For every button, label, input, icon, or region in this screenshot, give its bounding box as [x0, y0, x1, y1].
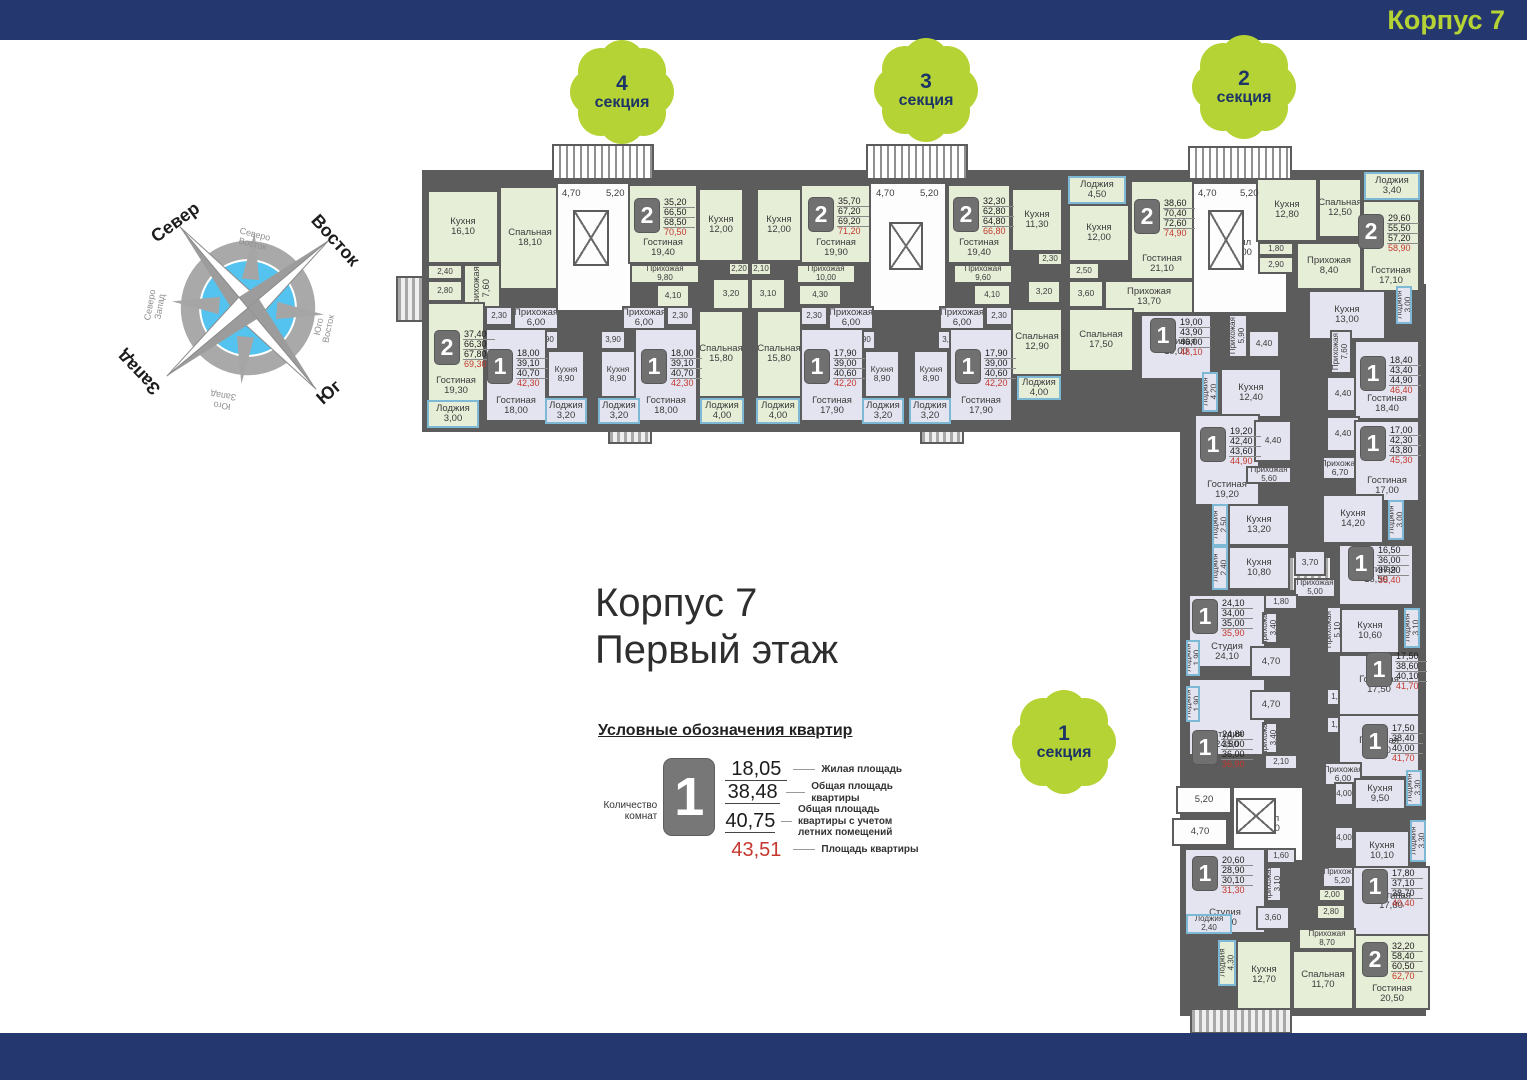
kitchen: Кухня 11,30: [1011, 188, 1063, 252]
apartment-badge-1-room: 118,0039,1040,7042,30: [641, 349, 702, 388]
legend-value: 40,75: [725, 810, 775, 833]
loggia: Лоджия 4,50: [1068, 176, 1126, 204]
legend-label: Площадь квартиры: [821, 844, 918, 856]
loggia: Лоджия 3,20: [909, 398, 951, 424]
kitchen: Кухня 8,90: [600, 350, 636, 398]
room-count: 1: [1192, 856, 1218, 891]
apartment-areas: 35,2066,5068,5070,50: [663, 198, 695, 237]
room-count: 1: [1192, 730, 1218, 765]
bedroom: Спальная 17,50: [1068, 308, 1134, 372]
compass-label: Юго Запад: [209, 388, 237, 411]
stair-block: [866, 144, 968, 180]
apartment-badge-1-room: 117,5038,4040,0041,70: [1362, 724, 1423, 763]
legend-label: Общая площадь квартиры с учетом летних п…: [798, 804, 928, 839]
elevator-shaft: [1236, 798, 1276, 834]
room-cell: 1,60: [1266, 848, 1296, 864]
hallway: Прихожая 6,00: [513, 306, 559, 330]
legend-rooms-label: Количество комнат: [598, 800, 663, 822]
bedroom: Спальная 15,80: [698, 310, 744, 398]
title-line2: Первый этаж: [595, 627, 838, 674]
loggia: Лоджия 1,90: [1186, 686, 1200, 722]
apartment-badge-1-room: 117,5038,6040,1041,70: [1366, 652, 1427, 691]
loggia: Лоджия 3,20: [598, 398, 640, 424]
legend-row: 43,51Площадь квартиры: [725, 839, 928, 861]
apartment-areas: 17,5038,4040,0041,70: [1391, 724, 1423, 763]
hallway: Прихожая 8,40: [1296, 242, 1362, 290]
hallway: Прихожая 9,80: [630, 264, 700, 284]
hallway: Прихожая 6,00: [622, 306, 666, 330]
room-count: 1: [1362, 869, 1388, 904]
elevator-shaft: [889, 222, 923, 270]
room-cell: 2,30: [666, 306, 694, 326]
apartment-badge-1-room: 124,1034,0035,0035,90: [1192, 599, 1253, 638]
room-cell: 4,00: [1334, 826, 1354, 850]
area-value: 41,70: [1391, 754, 1423, 763]
apartment-badge-2-room: 235,2066,5068,5070,50: [634, 198, 695, 237]
area-value: 42,20: [984, 379, 1016, 388]
hallway: Прихожая 3,40: [1262, 612, 1278, 644]
hallway: Прихожая 10,00: [796, 264, 856, 284]
room-cell: 5,20: [1176, 786, 1232, 814]
area-value: 35,90: [1221, 629, 1253, 638]
loggia: Лоджия 4,00: [1017, 376, 1061, 400]
bedroom: Спальная 12,50: [1318, 178, 1362, 238]
room-count: 2: [1362, 942, 1388, 977]
kitchen: Кухня 10,80: [1228, 546, 1290, 590]
apartment-badge-2-room: 235,7067,2069,2071,20: [808, 197, 869, 236]
room-cell: 4,00: [1334, 782, 1354, 806]
kitchen: Кухня 14,20: [1322, 494, 1384, 544]
loggia: Лоджия 3,00: [1388, 500, 1404, 540]
loggia: Лоджия 4,00: [700, 398, 744, 424]
room-count: 1: [955, 349, 981, 384]
legend-values: 18,05Жилая площадь38,48Общая площадь ква…: [725, 758, 928, 861]
room-count: 1: [1192, 599, 1218, 634]
loggia: Лоджия 2,40: [1212, 546, 1228, 590]
kitchen: Кухня 12,80: [1256, 178, 1318, 242]
room-cell: 3,60: [1256, 906, 1290, 930]
dimension-label: 5,20: [606, 188, 625, 199]
room-cell: 2,80: [1316, 904, 1346, 920]
hallway: Прихожая 5,60: [1246, 466, 1292, 484]
legend-connector: [786, 792, 805, 793]
loggia: Лоджия 2,50: [1212, 504, 1228, 546]
hallway: Прихожая 6,00: [828, 306, 874, 330]
room-cell: 2,90: [1258, 256, 1294, 274]
room-cell: 4,70: [1250, 646, 1292, 678]
hallway: Прихожая 5,90: [1228, 314, 1248, 358]
area-value: 42,30: [670, 379, 702, 388]
room-cell: 2,30: [800, 306, 828, 326]
room-cell: 2,40: [427, 264, 463, 280]
room-cell: 3,10: [750, 278, 786, 310]
apartment-badge-2-room: 238,6070,4072,6074,90: [1134, 199, 1195, 238]
room-cell: 4,40: [1248, 330, 1280, 358]
apartment-areas: 20,6028,9030,1031,30: [1221, 856, 1253, 895]
area-value: 36,90: [1221, 760, 1253, 769]
area-value: 46,40: [1389, 386, 1421, 395]
room-cell: 4,70: [1172, 818, 1228, 846]
room-cell: 2,50: [1068, 262, 1100, 280]
page: Корпус 7 СеверВостокЮгЗападСеверо Восток…: [0, 0, 1527, 1080]
apartment-badge-1-room: 116,5036,0037,2038,40: [1348, 546, 1409, 585]
room-count: 2: [953, 197, 979, 232]
legend-connector: [781, 821, 792, 822]
legend-value: 38,48: [725, 781, 780, 804]
loggia: Лоджия 3,30: [1406, 770, 1422, 806]
apartment-areas: 18,0039,1040,7042,30: [670, 349, 702, 388]
room-cell: 3,70: [1294, 550, 1326, 576]
apartment-badge-2-room: 232,2058,4060,5062,70: [1362, 942, 1423, 981]
apartment-badge-1-room: 117,0042,3043,8045,30: [1360, 426, 1421, 465]
legend-sample-number: 1: [674, 766, 704, 828]
apartment-badge-1-room: 118,4043,4044,9046,40: [1360, 356, 1421, 395]
area-value: 41,70: [1395, 682, 1427, 691]
loggia: Лоджия 2,40: [1186, 914, 1232, 934]
room-count: 2: [434, 330, 460, 365]
apartment-badge-1-room: 117,9039,0040,6042,20: [804, 349, 865, 388]
footer-bar: [0, 1033, 1527, 1080]
hallway: Прихожая 5,10: [1326, 606, 1342, 654]
stair-block: [1188, 146, 1292, 180]
loggia: Лоджия 3,00: [427, 400, 479, 428]
area-value: 42,30: [516, 379, 548, 388]
loggia: Лоджия 3,00: [1396, 286, 1412, 324]
hallway: Прихожая 7,60: [1330, 330, 1352, 374]
apartment-areas: 17,9039,0040,6042,20: [984, 349, 1016, 388]
loggia: Лоджия 3,20: [862, 398, 904, 424]
area-value: 42,20: [833, 379, 865, 388]
area-value: 31,30: [1221, 886, 1253, 895]
loggia: Лоджия 4,00: [756, 398, 800, 424]
apartment-areas: 18,4043,4044,9046,40: [1389, 356, 1421, 395]
legend-label: Общая площадь квартиры: [811, 781, 928, 804]
legend-label: Жилая площадь: [821, 764, 902, 776]
dimension-label: 4,70: [562, 188, 581, 199]
kitchen: Кухня 12,00: [1068, 204, 1130, 262]
room-cell: 3,20: [712, 278, 750, 310]
hallway: Прихожая 6,70: [1322, 456, 1358, 480]
hallway: Прихожая 8,70: [1298, 928, 1356, 950]
legend-row: 38,48Общая площадь квартиры: [725, 781, 928, 804]
kitchen: Кухня 8,90: [864, 350, 900, 398]
area-value: 58,90: [1387, 244, 1419, 253]
apartment-areas: 35,7067,2069,2071,20: [837, 197, 869, 236]
room-cell: 4,30: [798, 284, 842, 306]
apartment-badge-1-room: 120,6028,9030,1031,30: [1192, 856, 1253, 895]
room-count: 2: [1358, 214, 1384, 249]
area-value: 44,90: [1229, 457, 1261, 466]
kitchen: Кухня 8,90: [547, 350, 585, 398]
apartment-badge-2-room: 237,4066,3067,8069,30: [434, 330, 495, 369]
kitchen: Кухня 12,00: [698, 188, 744, 262]
room-cell: 4,70: [1250, 690, 1292, 720]
apartment-badge-1-room: 117,9039,0040,6042,20: [955, 349, 1016, 388]
loggia: Лоджия 4,20: [1202, 372, 1218, 412]
room-count: 1: [641, 349, 667, 384]
floor-plan: Кухня 16,10Спальная 18,102,402,80Прихожа…: [0, 0, 1527, 1080]
room-cell: 2,30: [1037, 252, 1063, 266]
room-count: 1: [1360, 356, 1386, 391]
apartment-badge-2-room: 229,6055,5057,2058,90: [1358, 214, 1419, 253]
room-count: 2: [1134, 199, 1160, 234]
room-cell: 4,10: [973, 284, 1011, 306]
loggia: Лоджия 3,20: [545, 398, 587, 424]
apartment-areas: 24,8035,0036,0036,90: [1221, 730, 1253, 769]
section-badge-1: 1секция: [1012, 690, 1116, 794]
entrance-porch: [1190, 1008, 1292, 1034]
loggia: Лоджия 1,90: [1186, 640, 1200, 676]
legend-value: 18,05: [725, 758, 787, 781]
area-value: 74,90: [1163, 229, 1195, 238]
legend: Условные обозначения квартир Количество …: [598, 722, 928, 861]
legend-connector: [793, 769, 815, 770]
hallway: Прихожая 5,00: [1294, 578, 1336, 598]
section-badge-4: 4секция: [570, 40, 674, 144]
apartment-badge-2-room: 232,3062,8064,8066,80: [953, 197, 1014, 236]
area-value: 40,40: [1391, 899, 1423, 908]
dimension-label: 4,70: [876, 188, 895, 199]
apartment-areas: 38,6070,4072,6074,90: [1163, 199, 1195, 238]
apartment-areas: 16,5036,0037,2038,40: [1377, 546, 1409, 585]
apartment-areas: 24,1034,0035,0035,90: [1221, 599, 1253, 638]
dimension-label: 4,70: [1198, 188, 1217, 199]
room-count: 1: [1150, 318, 1176, 353]
kitchen: Кухня 12,70: [1236, 940, 1292, 1010]
kitchen: Кухня 13,20: [1228, 504, 1290, 546]
loggia: Лоджия 4,30: [1218, 940, 1236, 986]
apartment-badge-1-room: 124,8035,0036,0036,90: [1192, 730, 1253, 769]
apartment-badge-1-room: 119,2042,4043,6044,90: [1200, 427, 1261, 466]
legend-title: Условные обозначения квартир: [598, 722, 928, 740]
area-value: 62,70: [1391, 972, 1423, 981]
bedroom: Спальная 15,80: [756, 310, 802, 398]
elevator-shaft: [1208, 210, 1244, 270]
hallway: Прихожая 3,10: [1266, 866, 1282, 902]
loggia: Лоджия 3,30: [1410, 820, 1426, 862]
apartment-areas: 17,9039,0040,6042,20: [833, 349, 865, 388]
apartment-badge-1-room: 117,8037,1038,7040,40: [1362, 869, 1423, 908]
apartment-areas: 17,0042,3043,8045,30: [1389, 426, 1421, 465]
section-label: 4секция: [570, 40, 674, 144]
elevator-shaft: [573, 210, 609, 266]
legend-connector: [793, 849, 815, 850]
room-cell: 2,80: [427, 280, 463, 302]
bedroom: Спальная 18,10: [499, 186, 561, 290]
room-count: 2: [634, 198, 660, 233]
room-count: 1: [487, 349, 513, 384]
entrance-porch: [608, 430, 652, 444]
area-value: 70,50: [663, 228, 695, 237]
apartment-areas: 32,3062,8064,8066,80: [982, 197, 1014, 236]
bedroom: Спальная 12,90: [1011, 308, 1063, 376]
apartment-areas: 29,6055,5057,2058,90: [1387, 214, 1419, 253]
apartment-areas: 17,8037,1038,7040,40: [1391, 869, 1423, 908]
section-label: 3секция: [874, 38, 978, 142]
apartment-areas: 32,2058,4060,5062,70: [1391, 942, 1423, 981]
room-cell: 3,20: [1027, 280, 1061, 304]
room-count: 1: [804, 349, 830, 384]
section-label: 2секция: [1192, 35, 1296, 139]
kitchen: Кухня 10,60: [1340, 608, 1400, 654]
room-count: 1: [1360, 426, 1386, 461]
title-block: Корпус 7 Первый этаж: [595, 580, 838, 674]
room-cell: 2,10: [1264, 754, 1298, 770]
room-cell: 1,80: [1258, 242, 1294, 256]
area-value: 45,30: [1389, 456, 1421, 465]
room-cell: 2,00: [1318, 888, 1346, 902]
room-cell: 3,60: [1068, 280, 1104, 308]
apartment-areas: 19,2042,4043,6044,90: [1229, 427, 1261, 466]
title-line1: Корпус 7: [595, 580, 838, 627]
kitchen: Кухня 9,50: [1354, 778, 1406, 810]
area-value: 38,40: [1377, 576, 1409, 585]
room-count: 1: [1200, 427, 1226, 462]
room-cell: 2,30: [985, 306, 1013, 326]
legend-value: 43,51: [725, 839, 787, 861]
apartment-areas: 18,0039,1040,7042,30: [516, 349, 548, 388]
room-count: 1: [1366, 652, 1392, 687]
kitchen: Кухня 8,90: [913, 350, 949, 398]
section-badge-3: 3секция: [874, 38, 978, 142]
room-cell: 4,10: [656, 284, 690, 308]
apartment-badge-1-room: 118,0039,1040,7042,30: [487, 349, 548, 388]
section-label: 1секция: [1012, 690, 1116, 794]
area-value: 66,80: [982, 227, 1014, 236]
area-value: 71,20: [837, 227, 869, 236]
apartment-areas: 19,0043,9046,0048,10: [1179, 318, 1211, 357]
room-cell: 2,20: [728, 262, 750, 276]
room-cell: 2,30: [485, 306, 513, 326]
room-count: 1: [1348, 546, 1374, 581]
legend-row: 18,05Жилая площадь: [725, 758, 928, 781]
entrance-porch: [396, 276, 424, 322]
hallway: Прихожая 3,40: [1262, 722, 1278, 754]
loggia: Лоджия 3,10: [1404, 608, 1420, 648]
apartment-areas: 17,5038,6040,1041,70: [1395, 652, 1427, 691]
legend-row: 40,75Общая площадь квартиры с учетом лет…: [725, 804, 928, 839]
section-badge-2: 2секция: [1192, 35, 1296, 139]
kitchen: Кухня 16,10: [427, 190, 499, 264]
legend-sample-badge: 1: [663, 758, 715, 836]
room-cell: 2,10: [750, 262, 772, 276]
entrance-porch: [920, 430, 964, 444]
dimension-label: 5,20: [1240, 188, 1259, 199]
room-cell: 1,80: [1264, 594, 1298, 610]
room-cell: 3,90: [600, 330, 626, 350]
hallway: Прихожая 9,60: [953, 264, 1013, 284]
kitchen: Кухня 12,40: [1220, 368, 1282, 418]
hallway: Прихожая 6,00: [939, 306, 985, 330]
loggia: Лоджия 3,40: [1364, 172, 1420, 200]
bedroom: Спальная 11,70: [1292, 950, 1354, 1010]
kitchen: Кухня 12,00: [756, 188, 802, 262]
dimension-label: 5,20: [920, 188, 939, 199]
room-count: 1: [1362, 724, 1388, 759]
stair-block: [552, 144, 654, 180]
room-count: 2: [808, 197, 834, 232]
area-value: 48,10: [1179, 348, 1211, 357]
apartment-badge-1-room: 119,0043,9046,0048,10: [1150, 318, 1211, 357]
